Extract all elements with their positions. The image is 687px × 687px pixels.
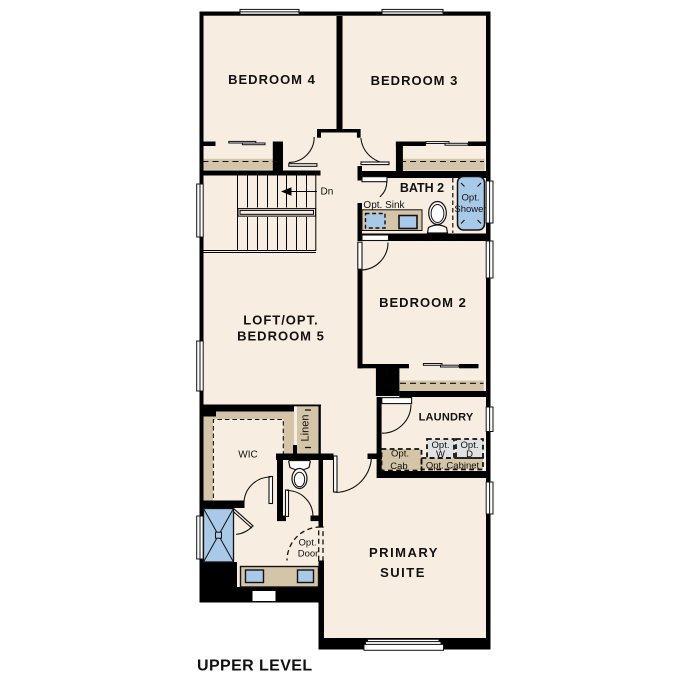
svg-text:Dn: Dn (321, 187, 334, 198)
svg-text:Linen: Linen (300, 415, 312, 442)
svg-text:LAUNDRY: LAUNDRY (419, 412, 474, 424)
svg-text:BEDROOM 2: BEDROOM 2 (379, 295, 467, 310)
svg-text:BEDROOM 3: BEDROOM 3 (371, 73, 459, 88)
svg-text:Cab: Cab (390, 461, 407, 472)
svg-text:W: W (436, 449, 445, 460)
svg-text:Opt.: Opt. (391, 449, 409, 460)
svg-text:BEDROOM 5: BEDROOM 5 (237, 329, 325, 344)
svg-text:Opt.: Opt. (299, 538, 317, 549)
svg-text:SUITE: SUITE (380, 565, 426, 580)
svg-text:BEDROOM 4: BEDROOM 4 (228, 72, 316, 87)
svg-text:WIC: WIC (238, 450, 257, 461)
svg-text:Shower: Shower (454, 204, 486, 215)
svg-text:Opt. Cabinet: Opt. Cabinet (426, 460, 480, 471)
svg-text:Opt.: Opt. (462, 193, 480, 204)
svg-text:Door: Door (298, 549, 319, 560)
svg-text:Opt. Sink: Opt. Sink (363, 200, 405, 211)
svg-text:LOFT/OPT.: LOFT/OPT. (243, 313, 318, 328)
svg-text:PRIMARY: PRIMARY (369, 545, 439, 560)
svg-text:BATH 2: BATH 2 (400, 181, 444, 195)
svg-text:D: D (466, 449, 473, 460)
svg-text:UPPER LEVEL: UPPER LEVEL (197, 658, 313, 675)
